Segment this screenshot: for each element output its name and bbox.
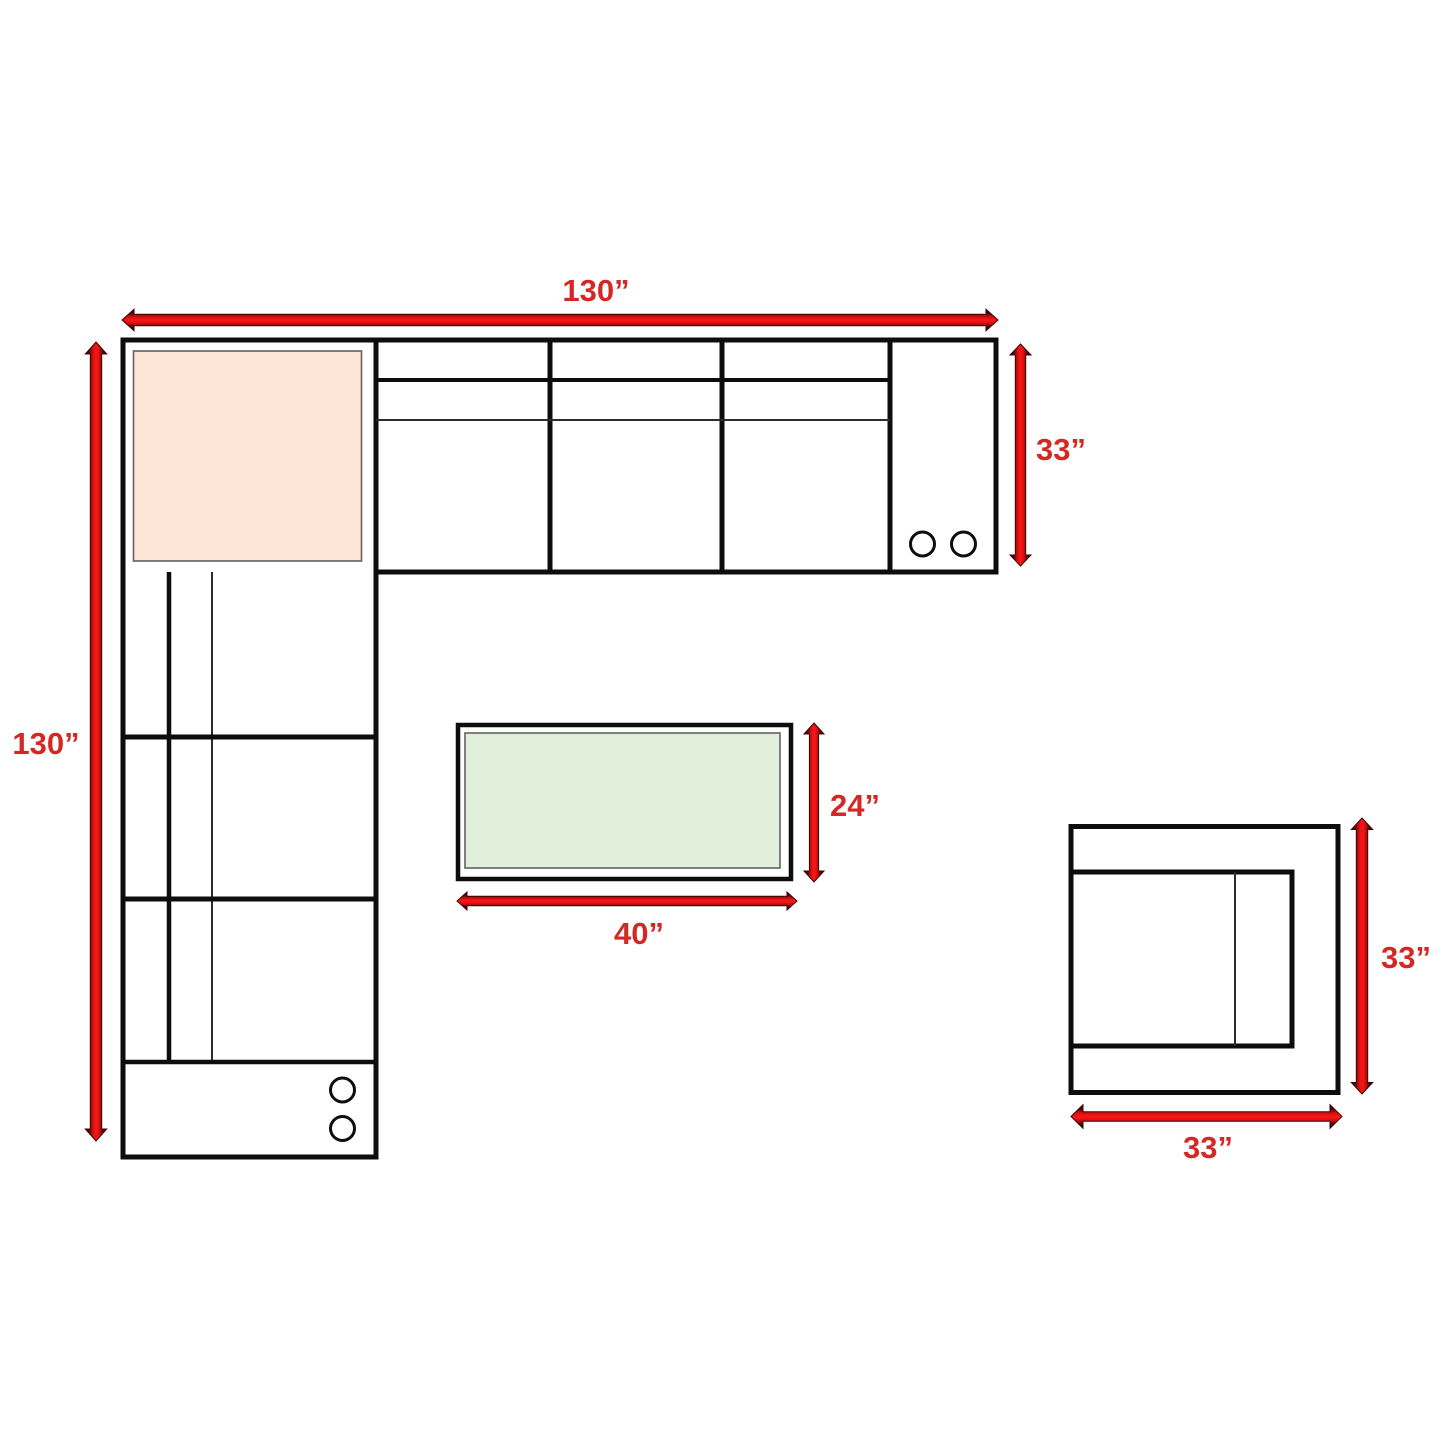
svg-text:130”: 130” [12,726,79,761]
svg-text:40”: 40” [614,916,664,951]
svg-text:33”: 33” [1381,940,1431,975]
svg-text:130”: 130” [562,273,629,308]
svg-text:24”: 24” [830,788,880,823]
svg-text:33”: 33” [1036,432,1086,467]
svg-text:33”: 33” [1183,1130,1233,1165]
